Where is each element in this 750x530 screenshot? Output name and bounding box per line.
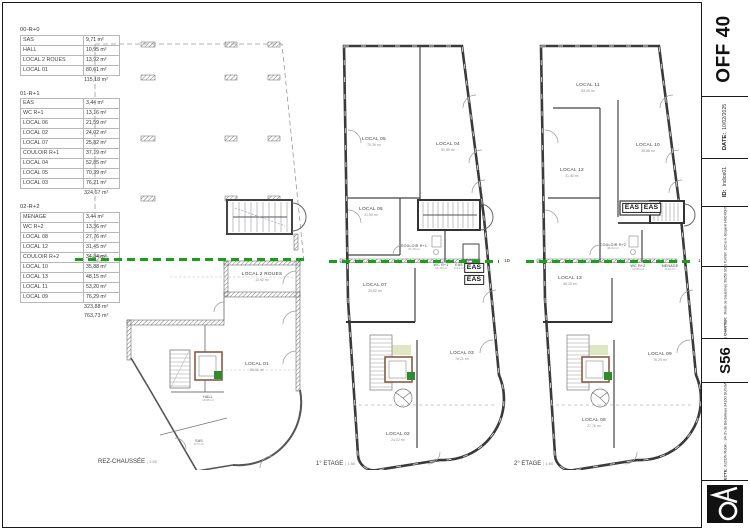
caption-text: 2° ETAGE	[514, 461, 541, 467]
caption-text: 1° ETAGE	[316, 461, 343, 467]
date-value: 10/02/2025	[722, 104, 728, 130]
title-cell-logo	[702, 480, 748, 527]
id-label: ID:	[722, 189, 728, 197]
site-label: ADRESSE CHANTIER:	[723, 317, 728, 339]
title-cell-sheet-code: OFF 40	[702, 2, 748, 97]
moa-address: 1015 av H. Becquerel 34000 MONTPELLIER	[723, 206, 728, 250]
table-title: 00-R+0	[20, 27, 119, 33]
floorplan-rdc-linework	[75, 40, 310, 470]
floorplan-etage2-linework	[530, 40, 705, 470]
title-cell-moa: MOA: SAS PLAYER 1015 av H. Becquerel 340…	[702, 206, 748, 267]
section-line-etage1: 1D	[329, 260, 499, 263]
architect-name: JUZON Robin	[723, 443, 728, 467]
id-value: Indice01	[722, 167, 728, 187]
caption-scale: 1:50	[345, 461, 355, 466]
architect-logo	[707, 485, 743, 523]
title-cell-id: ID: Indice01	[702, 158, 748, 207]
caption-scale: 1:50	[543, 461, 553, 466]
section-line-etage2: 1D	[526, 260, 693, 263]
moa-name: SAS PLAYER	[723, 252, 728, 267]
title-cell-architect: ARCHITECTE: JUZON Robin 34 ch de Bédarie…	[702, 382, 748, 481]
title-cell-project-code: S56	[702, 338, 748, 383]
site-address: Route de Saussines 30250 SOMMIERES	[723, 266, 728, 314]
title-block: OFF 40 DATE: 10/02/2025 ID: Indice01 MOA…	[701, 2, 748, 528]
sheet-code: OFF 40	[714, 15, 736, 82]
title-cell-site: ADRESSE CHANTIER: Route de Saussines 302…	[702, 266, 748, 339]
caption-etage1: 1° ETAGE1:50	[316, 461, 355, 467]
section-line-rdc	[75, 258, 308, 261]
caption-text: REZ-CHAUSSÉE	[98, 459, 145, 465]
drawing-sheet: 00-R+0 SAS9,71 m²HALL10,95 m²LOCAL 2 ROU…	[0, 0, 750, 530]
section-line-label: 1D	[504, 258, 510, 263]
caption-rdc: REZ-CHAUSSÉE1:50	[98, 459, 157, 465]
floorplan-etage1-linework	[333, 40, 508, 470]
title-cell-date: DATE: 10/02/2025	[702, 96, 748, 159]
caption-scale: 1:50	[147, 459, 157, 464]
caption-etage2: 2° ETAGE1:50	[514, 461, 553, 467]
architect-address: 34 ch de Bédarieux 34160 SUSSARGUES	[723, 382, 728, 440]
date-label: DATE:	[722, 133, 728, 150]
project-code: S56	[716, 347, 733, 374]
